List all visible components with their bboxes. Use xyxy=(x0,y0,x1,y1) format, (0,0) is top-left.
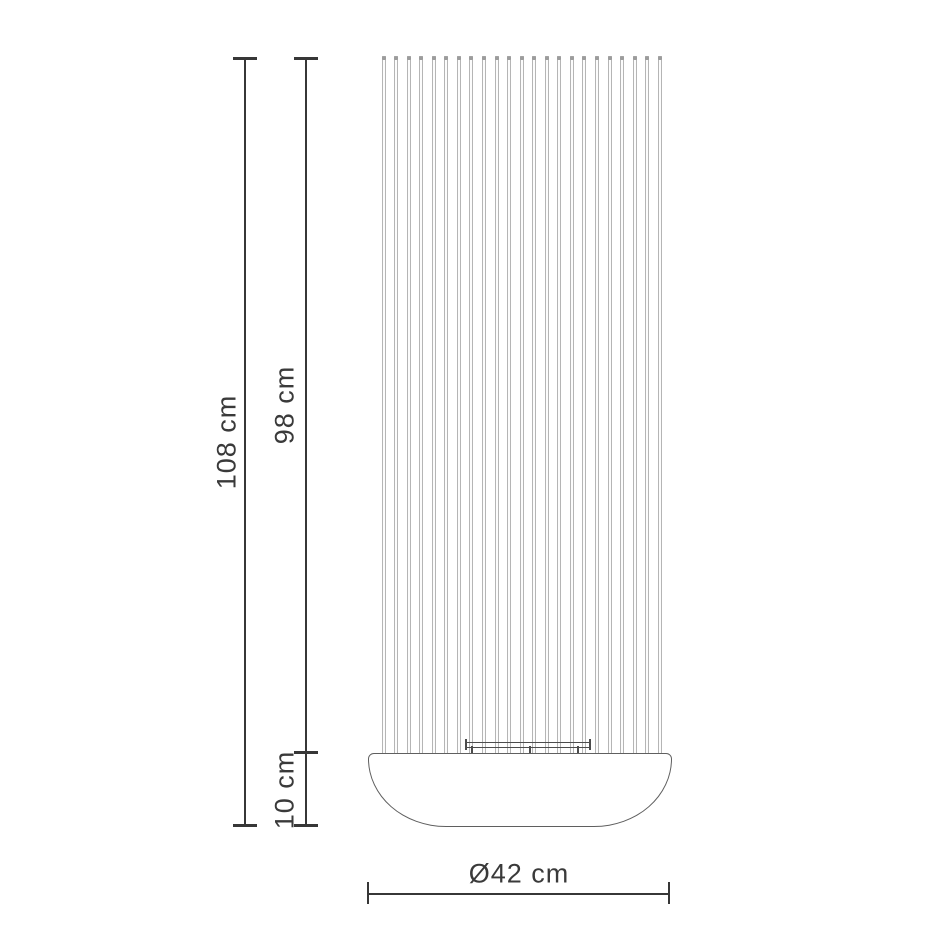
rod-cap xyxy=(520,56,524,60)
rod-cap xyxy=(645,56,649,60)
dimension-tick-diameter-left xyxy=(367,882,369,904)
rod-cap xyxy=(507,56,511,60)
rod xyxy=(469,56,473,754)
dimension-tick-sections-top xyxy=(294,57,318,60)
rod-cap xyxy=(545,56,549,60)
rod-cap xyxy=(407,56,411,60)
rod-cap xyxy=(394,56,398,60)
dimension-tick-total-top xyxy=(233,57,257,60)
dimension-label-diameter: Ø42 cm xyxy=(469,859,570,890)
rod-cap xyxy=(633,56,637,60)
rod xyxy=(394,56,398,754)
rod-cap xyxy=(482,56,486,60)
dimension-label-total-height: 108 cm xyxy=(212,395,243,490)
rod-cap xyxy=(469,56,473,60)
lamp-base xyxy=(368,753,672,827)
rod xyxy=(658,56,662,754)
rod xyxy=(432,56,436,754)
rod xyxy=(570,56,574,754)
rod xyxy=(557,56,561,754)
rod xyxy=(507,56,511,754)
rod-cap xyxy=(495,56,499,60)
bracket-end-tick xyxy=(589,739,591,750)
rod xyxy=(645,56,649,754)
rod xyxy=(608,56,612,754)
rod-cap xyxy=(595,56,599,60)
rod-cap xyxy=(382,56,386,60)
dimension-line-diameter xyxy=(368,893,670,895)
dimension-line-total-height xyxy=(244,57,246,827)
rod xyxy=(595,56,599,754)
rod-cap xyxy=(582,56,586,60)
rod-cap xyxy=(658,56,662,60)
rod-cap xyxy=(444,56,448,60)
rod xyxy=(520,56,524,754)
rod xyxy=(545,56,549,754)
rod-cap xyxy=(419,56,423,60)
rod xyxy=(382,56,386,754)
rod xyxy=(419,56,423,754)
rod xyxy=(620,56,624,754)
dimension-label-rod-section-height: 98 cm xyxy=(270,366,301,445)
rod-cap xyxy=(570,56,574,60)
rod-cap xyxy=(432,56,436,60)
rod xyxy=(582,56,586,754)
rod-cap xyxy=(620,56,624,60)
rod xyxy=(532,56,536,754)
rod xyxy=(444,56,448,754)
rod xyxy=(633,56,637,754)
dimension-line-sections xyxy=(305,57,307,827)
dimension-label-base-height: 10 cm xyxy=(270,751,301,830)
rod-cap xyxy=(608,56,612,60)
lamp-dimension-diagram: 108 cm 98 cm 10 cm Ø42 cm xyxy=(0,0,950,950)
rod xyxy=(495,56,499,754)
dimension-tick-diameter-right xyxy=(668,882,670,904)
bracket-end-tick xyxy=(465,739,467,750)
dimension-tick-total-bottom xyxy=(233,824,257,827)
rod xyxy=(407,56,411,754)
rod-cap xyxy=(457,56,461,60)
rod-cap xyxy=(532,56,536,60)
rod-cap xyxy=(557,56,561,60)
rod xyxy=(457,56,461,754)
rod xyxy=(482,56,486,754)
